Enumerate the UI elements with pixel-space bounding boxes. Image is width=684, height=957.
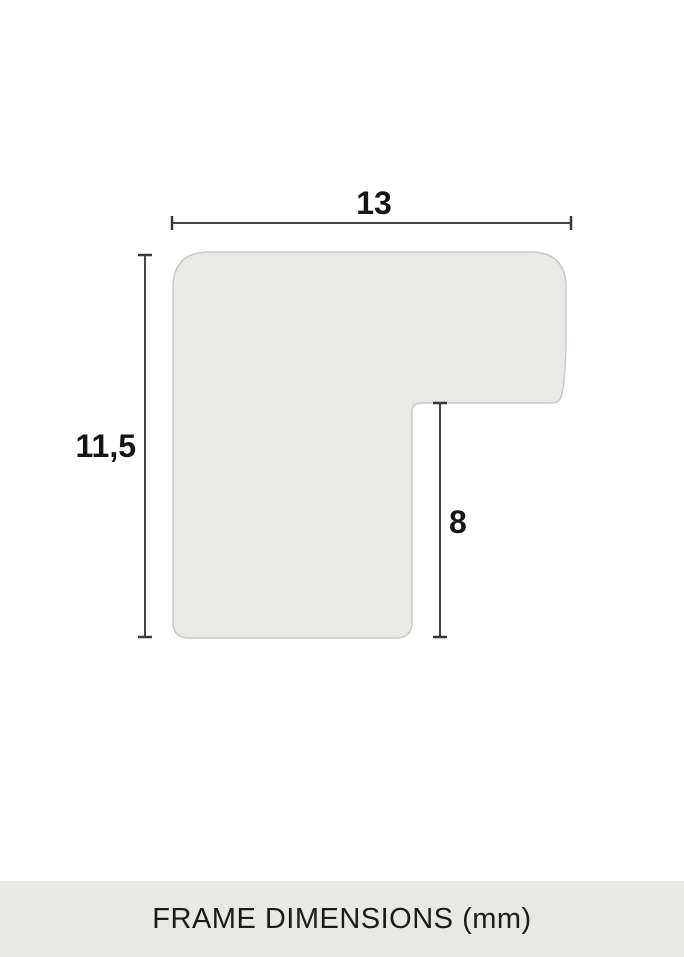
frame-profile-shape (173, 252, 566, 638)
width-dimension: 13 (172, 185, 571, 230)
width-dimension-label: 13 (356, 185, 392, 221)
height-dimension: 11,5 (75, 255, 152, 637)
footer-caption-bar: FRAME DIMENSIONS (mm) (0, 881, 684, 957)
height-dimension-label: 11,5 (75, 428, 136, 464)
rabbet-dimension-label: 8 (449, 504, 467, 540)
frame-profile-diagram: 13 11,5 8 (0, 0, 684, 881)
frame-dimensions-screenshot: 13 11,5 8 FRAME DIMENSIONS (mm) (0, 0, 684, 957)
rabbet-dimension: 8 (433, 403, 467, 637)
footer-caption-text: FRAME DIMENSIONS (mm) (152, 903, 531, 936)
